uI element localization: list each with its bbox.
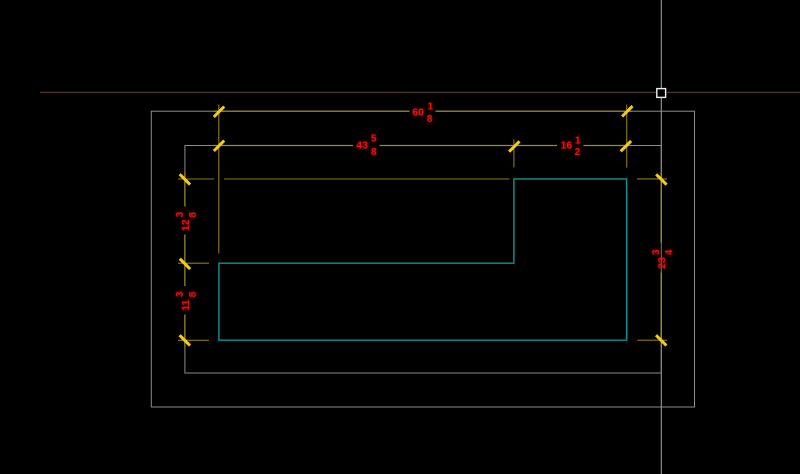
svg-text:12: 12 [180,219,192,231]
svg-text:2: 2 [575,147,581,158]
svg-text:3: 3 [651,249,662,255]
svg-text:16: 16 [561,140,573,152]
svg-text:8: 8 [427,114,433,125]
svg-text:1: 1 [575,136,581,147]
svg-text:23: 23 [656,257,668,269]
svg-text:8: 8 [188,291,199,297]
svg-text:8: 8 [188,212,199,218]
svg-text:60: 60 [412,106,424,118]
svg-text:43: 43 [356,140,368,152]
svg-text:4: 4 [664,249,675,255]
svg-text:1: 1 [428,102,434,113]
svg-text:8: 8 [371,147,377,158]
svg-text:3: 3 [175,291,186,297]
svg-text:3: 3 [175,211,186,217]
svg-text:11: 11 [180,300,192,311]
svg-text:5: 5 [371,134,377,145]
